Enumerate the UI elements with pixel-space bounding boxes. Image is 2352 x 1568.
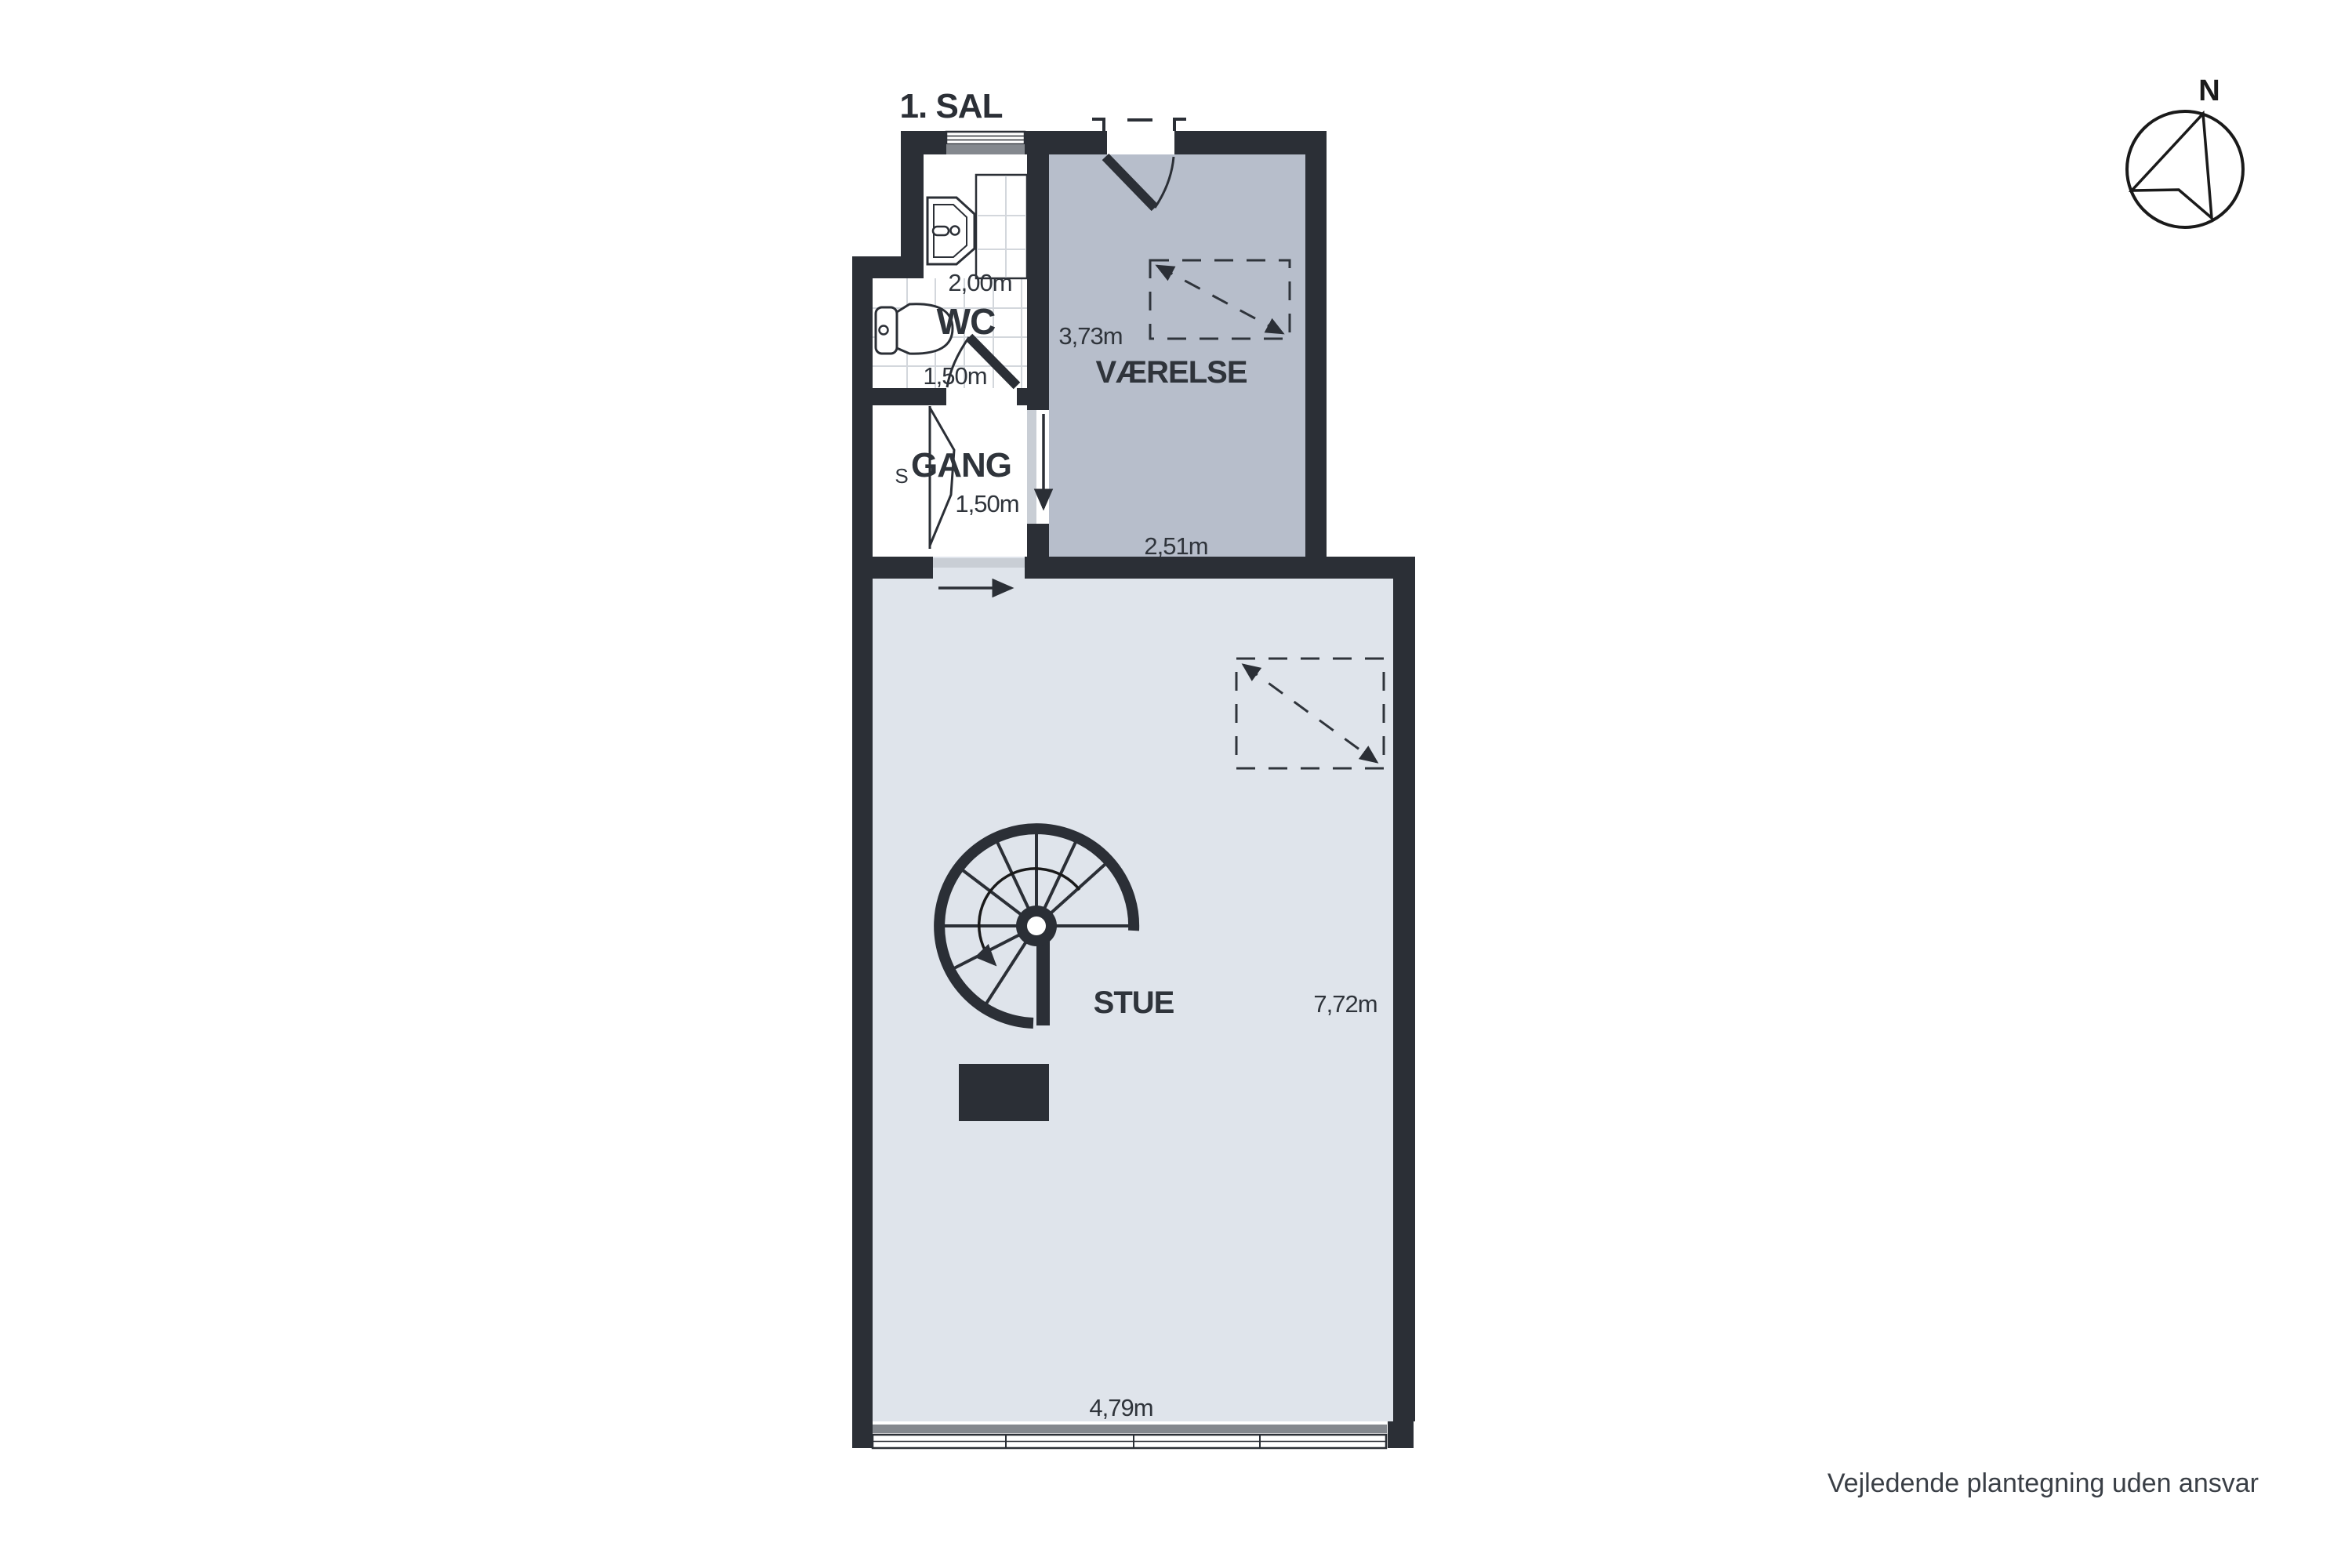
bath-window (946, 132, 1025, 154)
flue-block (959, 1064, 1049, 1121)
bath-depth-label: 1,50m (923, 362, 986, 390)
shower (976, 175, 1027, 278)
compass-north-icon: N (2127, 74, 2243, 227)
compass-north-label: N (2198, 74, 2220, 107)
gang-closet-label: S (895, 464, 908, 488)
disclaimer-text: Vejledende plantegning uden ansvar (1828, 1468, 2259, 1498)
bath-width-label: 2,00m (948, 269, 1011, 296)
sliding-door-gang-vaerelse (1027, 410, 1049, 524)
bath-room-label: WC (937, 301, 996, 342)
vaerelse-depth-label: 3,73m (1058, 322, 1122, 350)
stue-depth-label: 7,72m (1313, 990, 1377, 1018)
gang-width-label: 1,50m (955, 490, 1018, 517)
sink (927, 198, 975, 264)
vaerelse-width-label: 2,51m (1144, 532, 1207, 560)
vaerelse-room-label: VÆRELSE (1095, 355, 1247, 390)
floorplan-page: N 1. SAL 2,00m WC 1,50m S GANG 1,50m 3,7… (0, 0, 2352, 1568)
floor-title: 1. SAL (900, 87, 1003, 125)
floorplan-canvas: N 1. SAL 2,00m WC 1,50m S GANG 1,50m 3,7… (0, 0, 2352, 1568)
stue-window (873, 1425, 1387, 1448)
gang-room-label: GANG (911, 446, 1011, 485)
stue-room-label: STUE (1094, 985, 1174, 1020)
stue-width-label: 4,79m (1089, 1394, 1152, 1421)
